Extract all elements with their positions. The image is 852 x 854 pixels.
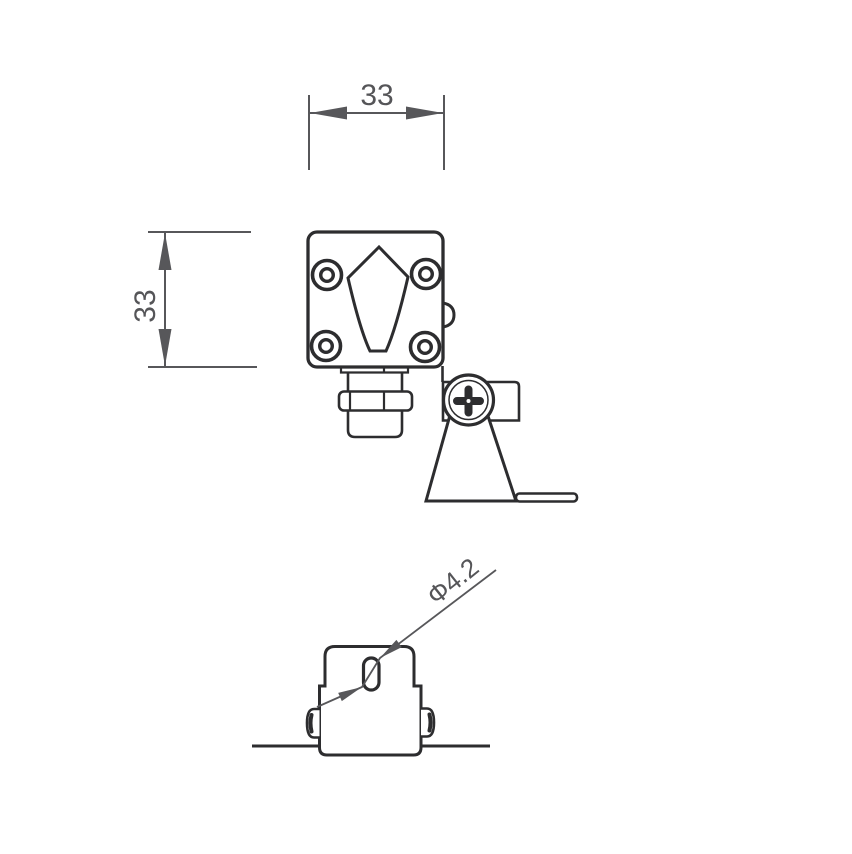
device-bottom-view — [252, 647, 490, 756]
arrowhead-right — [406, 107, 443, 120]
gland-upper-body — [348, 373, 402, 392]
cable-gland — [339, 366, 412, 437]
side-height-dimension: 33 — [129, 232, 257, 367]
drawing-canvas: 33 33 — [0, 0, 852, 854]
bracket-foot — [516, 494, 577, 502]
side-screw-right — [421, 709, 434, 737]
bracket-phillips-screw — [444, 375, 494, 425]
width-dimension-label: 33 — [360, 79, 393, 112]
screw-slot-mark — [311, 715, 312, 732]
technical-drawing-svg: 33 33 — [0, 0, 852, 854]
height-dimension-label: 33 — [129, 289, 162, 322]
screw-slot-mark — [430, 715, 431, 731]
mounting-bracket — [426, 366, 577, 502]
phillips-center-dot — [467, 399, 471, 403]
top-width-dimension: 33 — [309, 79, 444, 170]
arrowhead-left — [310, 107, 347, 120]
side-screw-left — [307, 709, 320, 738]
gland-lower-body — [348, 411, 402, 438]
arrowhead-up — [159, 233, 172, 270]
device-front-view — [308, 232, 454, 367]
arrowhead-down — [159, 329, 172, 366]
